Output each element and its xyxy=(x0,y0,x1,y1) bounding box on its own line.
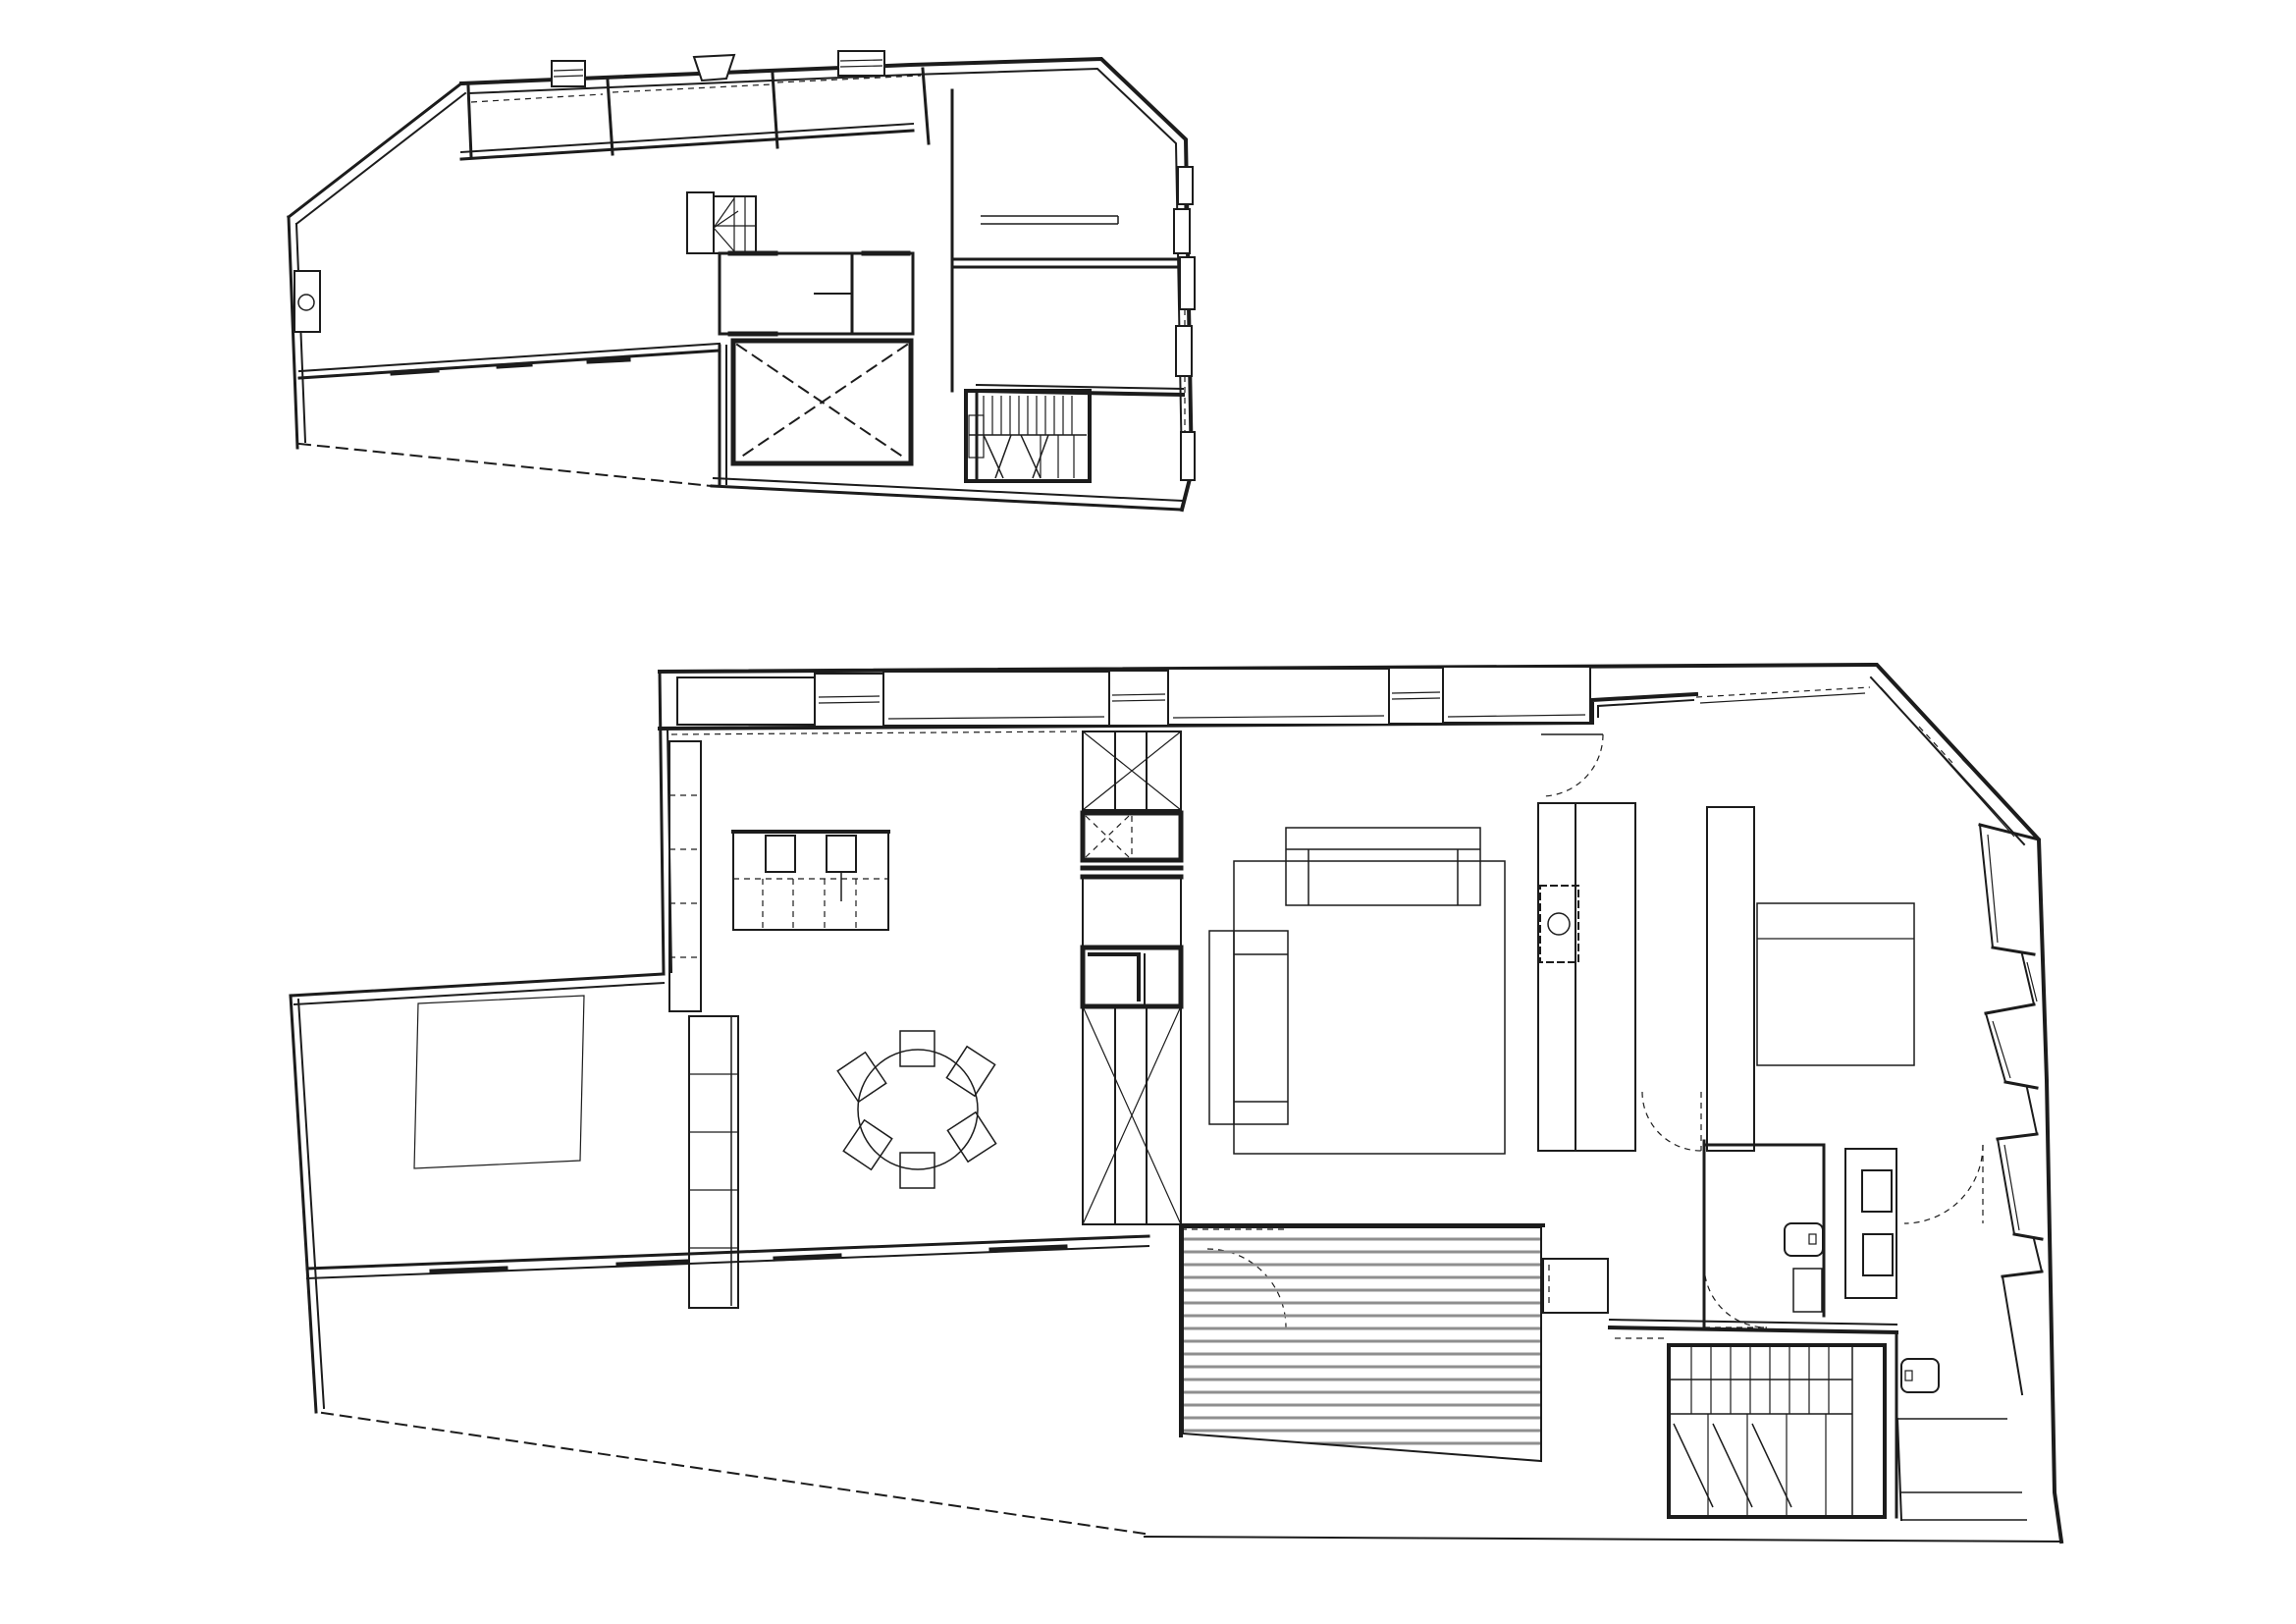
bedroom-wardrobe-band xyxy=(1538,803,1635,1151)
sofa-set xyxy=(1209,828,1480,1124)
dining-chair xyxy=(837,1053,885,1103)
x-braced-panel-bottom xyxy=(1083,1006,1181,1224)
upper-floor-plan xyxy=(289,51,1195,510)
bedroom-door-arc xyxy=(1541,734,1603,796)
upper-void-shaft-x xyxy=(733,341,911,463)
bathroom-door-arc xyxy=(1904,1145,1983,1223)
upper-exterior-walls xyxy=(289,59,1192,510)
floor-plan-canvas xyxy=(0,0,2296,1624)
floor-plan-sheet xyxy=(0,0,2296,1624)
south-window-wall xyxy=(307,1236,1148,1278)
bathroom xyxy=(1704,1141,1983,1392)
bathroom-cabinet xyxy=(1793,1269,1822,1312)
dining-chair xyxy=(946,1047,994,1096)
bedroom-partition xyxy=(1707,807,1754,1151)
upper-central-rooms xyxy=(720,253,913,334)
upper-top-windows xyxy=(471,51,921,102)
dining-chair xyxy=(900,1031,934,1066)
main-terrace-dashed-edge xyxy=(316,1412,1145,1534)
main-north-window-band xyxy=(660,667,1870,734)
upper-corridor-room xyxy=(294,271,726,486)
sink-niche xyxy=(1540,886,1578,962)
main-floor-plan xyxy=(291,665,2061,1542)
upper-winder-stair xyxy=(687,192,756,253)
upper-facade-window-bays xyxy=(1174,167,1195,480)
kitchen-island xyxy=(733,832,888,930)
island-stool xyxy=(827,836,856,872)
main-exterior-walls xyxy=(291,665,2061,1542)
west-wardrobe-column xyxy=(669,741,701,1011)
spine-open-bay xyxy=(1083,877,1181,947)
dining-chair xyxy=(900,1153,934,1188)
annex-room xyxy=(414,996,738,1308)
thick-shaft xyxy=(1083,947,1181,1006)
toilet-2 xyxy=(1901,1359,1939,1392)
small-balcony xyxy=(1897,1419,2027,1520)
deck-threshold xyxy=(1543,1259,1608,1313)
bedroom-door-arc-south xyxy=(1642,1092,1701,1151)
dining-chair xyxy=(843,1120,891,1170)
upper-terrace-dashed-edge xyxy=(299,444,712,486)
annex-rug xyxy=(414,996,584,1168)
bed xyxy=(1757,903,1914,1065)
island-stool xyxy=(766,836,795,872)
living-room xyxy=(1209,828,1505,1154)
main-staircase xyxy=(1610,1320,1896,1517)
x-braced-panel-top xyxy=(1083,731,1181,810)
upper-main-stair xyxy=(966,391,1090,481)
dining-table-round xyxy=(837,1031,995,1188)
central-spine xyxy=(1083,731,1181,1224)
deck-hatched xyxy=(1181,1225,1608,1461)
east-facade-bays xyxy=(1980,825,2042,1394)
toilet-1 xyxy=(1785,1223,1823,1256)
shower-column xyxy=(1845,1149,1896,1298)
elevator-shaft xyxy=(1083,813,1181,877)
